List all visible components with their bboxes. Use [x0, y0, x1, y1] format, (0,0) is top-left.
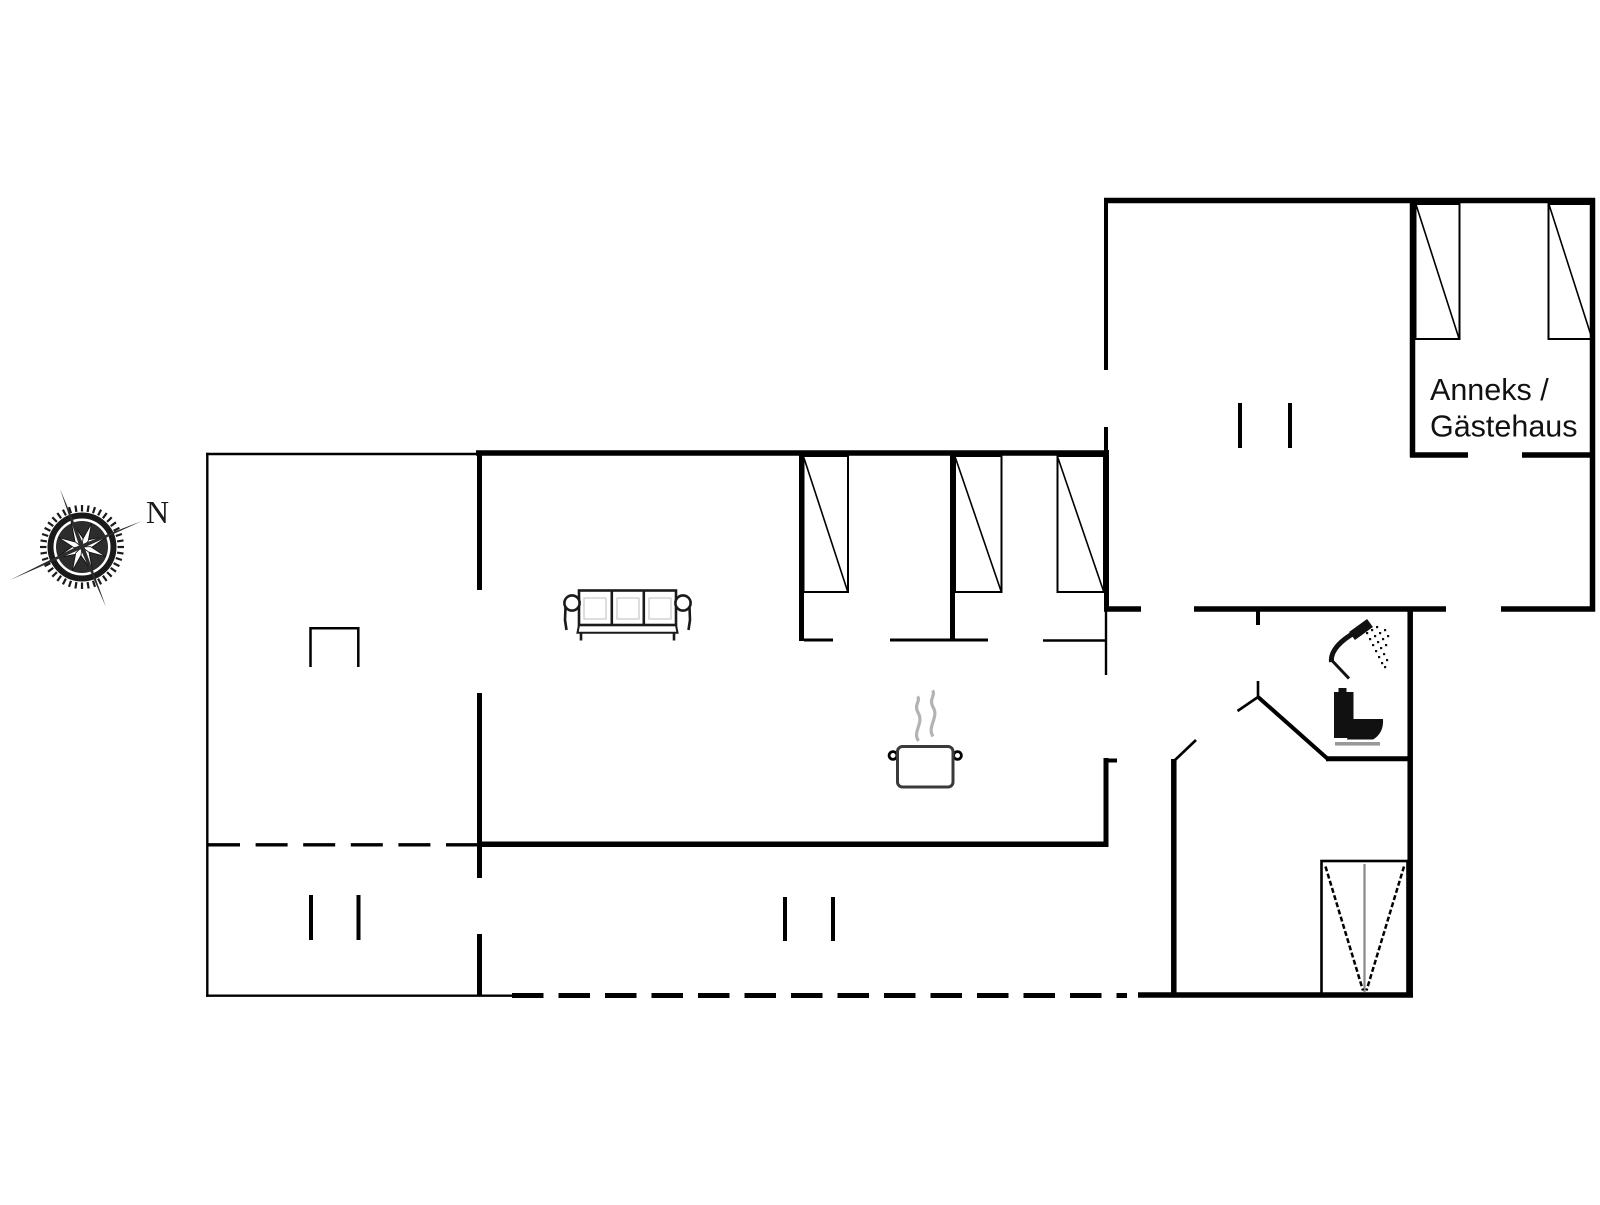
svg-text:Gästehaus: Gästehaus [1430, 410, 1578, 444]
svg-text:N: N [146, 494, 169, 530]
svg-text:Anneks /: Anneks / [1430, 373, 1549, 407]
